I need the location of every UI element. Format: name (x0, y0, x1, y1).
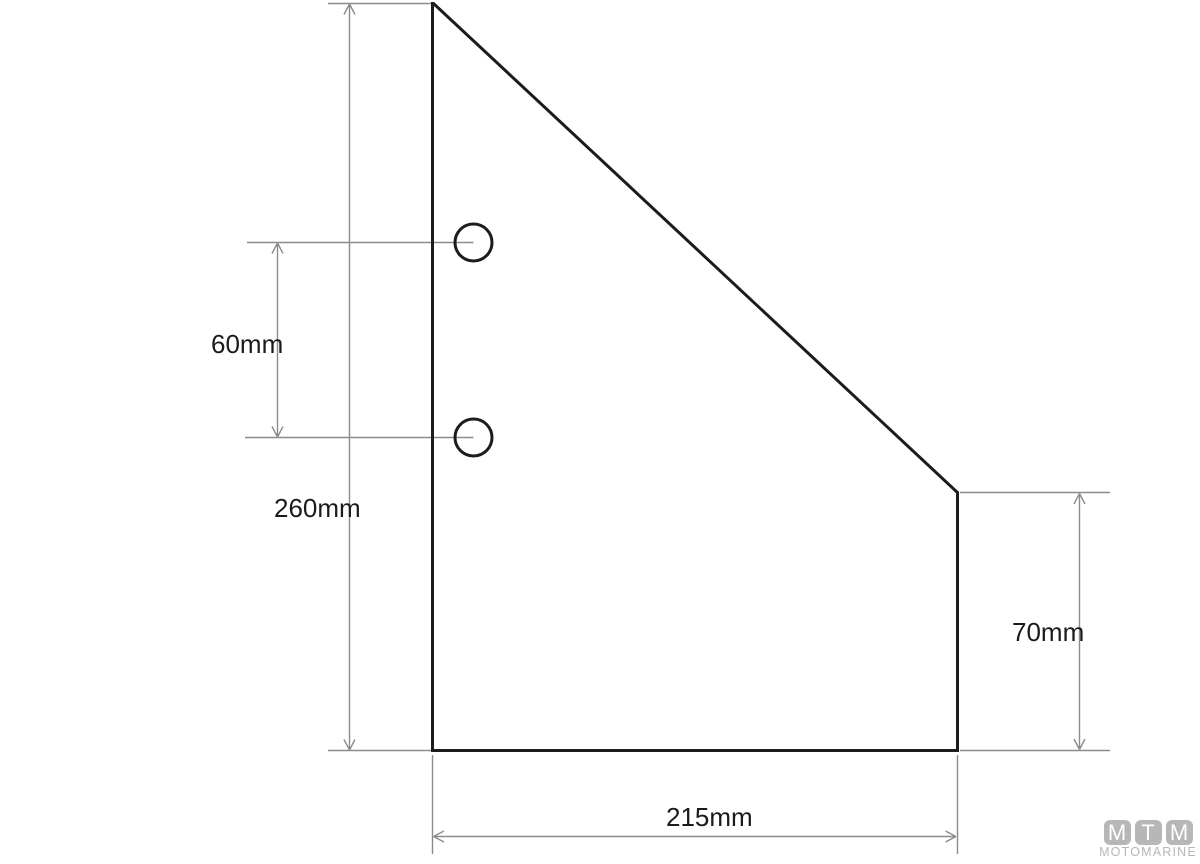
dimension-line-left-height (344, 4, 355, 750)
logo-letter-m1-icon: M (1104, 820, 1131, 845)
logo-subtitle: MOTOMARINE (1099, 846, 1197, 859)
logo-mtm-motomarine: M T M MOTOMARINE (1101, 820, 1195, 859)
dim-label-right-height: 70mm (1012, 619, 1084, 645)
mounting-holes (455, 224, 492, 456)
dim-label-bottom-width: 215mm (666, 804, 753, 830)
logo-letter-t-icon: T (1135, 820, 1162, 845)
dimension-line-bottom-width (434, 831, 957, 842)
dim-label-hole-spacing: 60mm (211, 331, 283, 357)
logo-letter-squares: M T M (1104, 820, 1193, 845)
drawing-canvas: 60mm 260mm 70mm 215mm M T M MOTOMARINE (0, 0, 1200, 864)
logo-letter-m2-icon: M (1166, 820, 1193, 845)
part-outline (433, 4, 958, 751)
extension-lines (245, 4, 1110, 855)
dim-label-left-height: 260mm (274, 495, 361, 521)
technical-drawing (0, 0, 1200, 864)
